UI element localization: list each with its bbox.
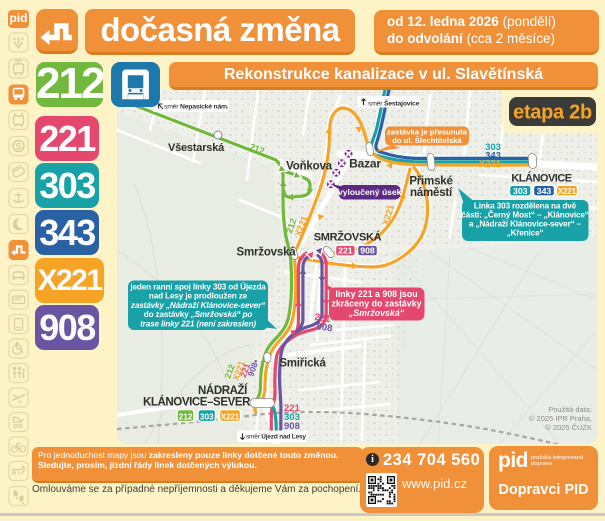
- svg-text:nad Lesy je prodloužen ze: nad Lesy je prodloužen ze: [149, 292, 248, 301]
- svg-text:221: 221: [338, 246, 353, 256]
- svg-text:směr Nepasické nám.: směr Nepasické nám.: [164, 104, 229, 111]
- svg-text:X221: X221: [558, 187, 577, 196]
- svg-text:908: 908: [284, 421, 300, 432]
- svg-text:343: 343: [537, 186, 552, 196]
- svg-text:Všestarská: Všestarská: [168, 142, 225, 154]
- svg-text:směr Újezd nad Lesy: směr Újezd nad Lesy: [246, 432, 306, 441]
- svg-text:S: S: [15, 141, 21, 151]
- svg-text:KLÁNOVICE–SEVER: KLÁNOVICE–SEVER: [143, 396, 251, 409]
- svg-text:části: „Černý Most“ – „Klánovi: části: „Černý Most“ – „Klánovice“: [461, 209, 589, 220]
- svg-text:Smržovská: Smržovská: [237, 247, 297, 259]
- svg-text:„Křenice“: „Křenice“: [507, 229, 544, 238]
- svg-text:212: 212: [179, 411, 193, 421]
- svg-text:NÁDRAŽÍ: NÁDRAŽÍ: [198, 384, 248, 397]
- svg-text:do ul. Šlechtitelská: do ul. Šlechtitelská: [392, 136, 462, 145]
- svg-text:zkráceny do zastávky: zkráceny do zastávky: [332, 299, 422, 309]
- svg-text:Použitá data:: Použitá data:: [548, 405, 592, 414]
- svg-text:X221: X221: [479, 159, 502, 170]
- svg-text:KLÁNOVICE: KLÁNOVICE: [511, 172, 571, 185]
- svg-text:© 2025 IPR Praha,: © 2025 IPR Praha,: [529, 414, 592, 423]
- svg-text:jeden ranní spoj linky 303 od: jeden ranní spoj linky 303 od Újezda: [129, 281, 266, 292]
- svg-text:do zastávky „Smržovská“ po: do zastávky „Smržovská“ po: [144, 310, 253, 319]
- svg-text:Voňkova: Voňkova: [286, 161, 332, 173]
- svg-text:náměstí: náměstí: [410, 187, 453, 199]
- svg-text:908: 908: [316, 321, 333, 334]
- svg-text:vyloučený úsek: vyloučený úsek: [338, 187, 402, 197]
- svg-text:linky 221 a 908 jsou: linky 221 a 908 jsou: [335, 289, 417, 299]
- svg-text:908: 908: [360, 246, 375, 256]
- svg-text:X221: X221: [221, 412, 240, 421]
- svg-text:zastávky „Nádraží Klánovice-se: zastávky „Nádraží Klánovice-sever“: [130, 301, 266, 310]
- svg-text:směr Šestajovice: směr Šestajovice: [368, 98, 420, 107]
- svg-text:trase linky 221 (není zakresle: trase linky 221 (není zakreslen): [140, 319, 256, 328]
- svg-text:Přimské: Přimské: [409, 176, 452, 188]
- svg-text:303: 303: [200, 411, 214, 421]
- svg-text:© 2025 ČÚZK: © 2025 ČÚZK: [545, 423, 592, 432]
- svg-text:a „Nádraží Klánovice-sever“ –: a „Nádraží Klánovice-sever“ –: [469, 220, 582, 229]
- svg-text:etapa 2b: etapa 2b: [513, 102, 592, 124]
- svg-text:Bazar: Bazar: [349, 157, 381, 171]
- svg-text:303: 303: [513, 186, 528, 196]
- svg-text:SMRŽOVSKÁ: SMRŽOVSKÁ: [314, 231, 382, 244]
- svg-text:Smiřická: Smiřická: [279, 358, 326, 370]
- svg-text:„Smržovská“: „Smržovská“: [348, 308, 405, 318]
- svg-text:Linka 303 rozdělena na dvě: Linka 303 rozdělena na dvě: [474, 202, 577, 211]
